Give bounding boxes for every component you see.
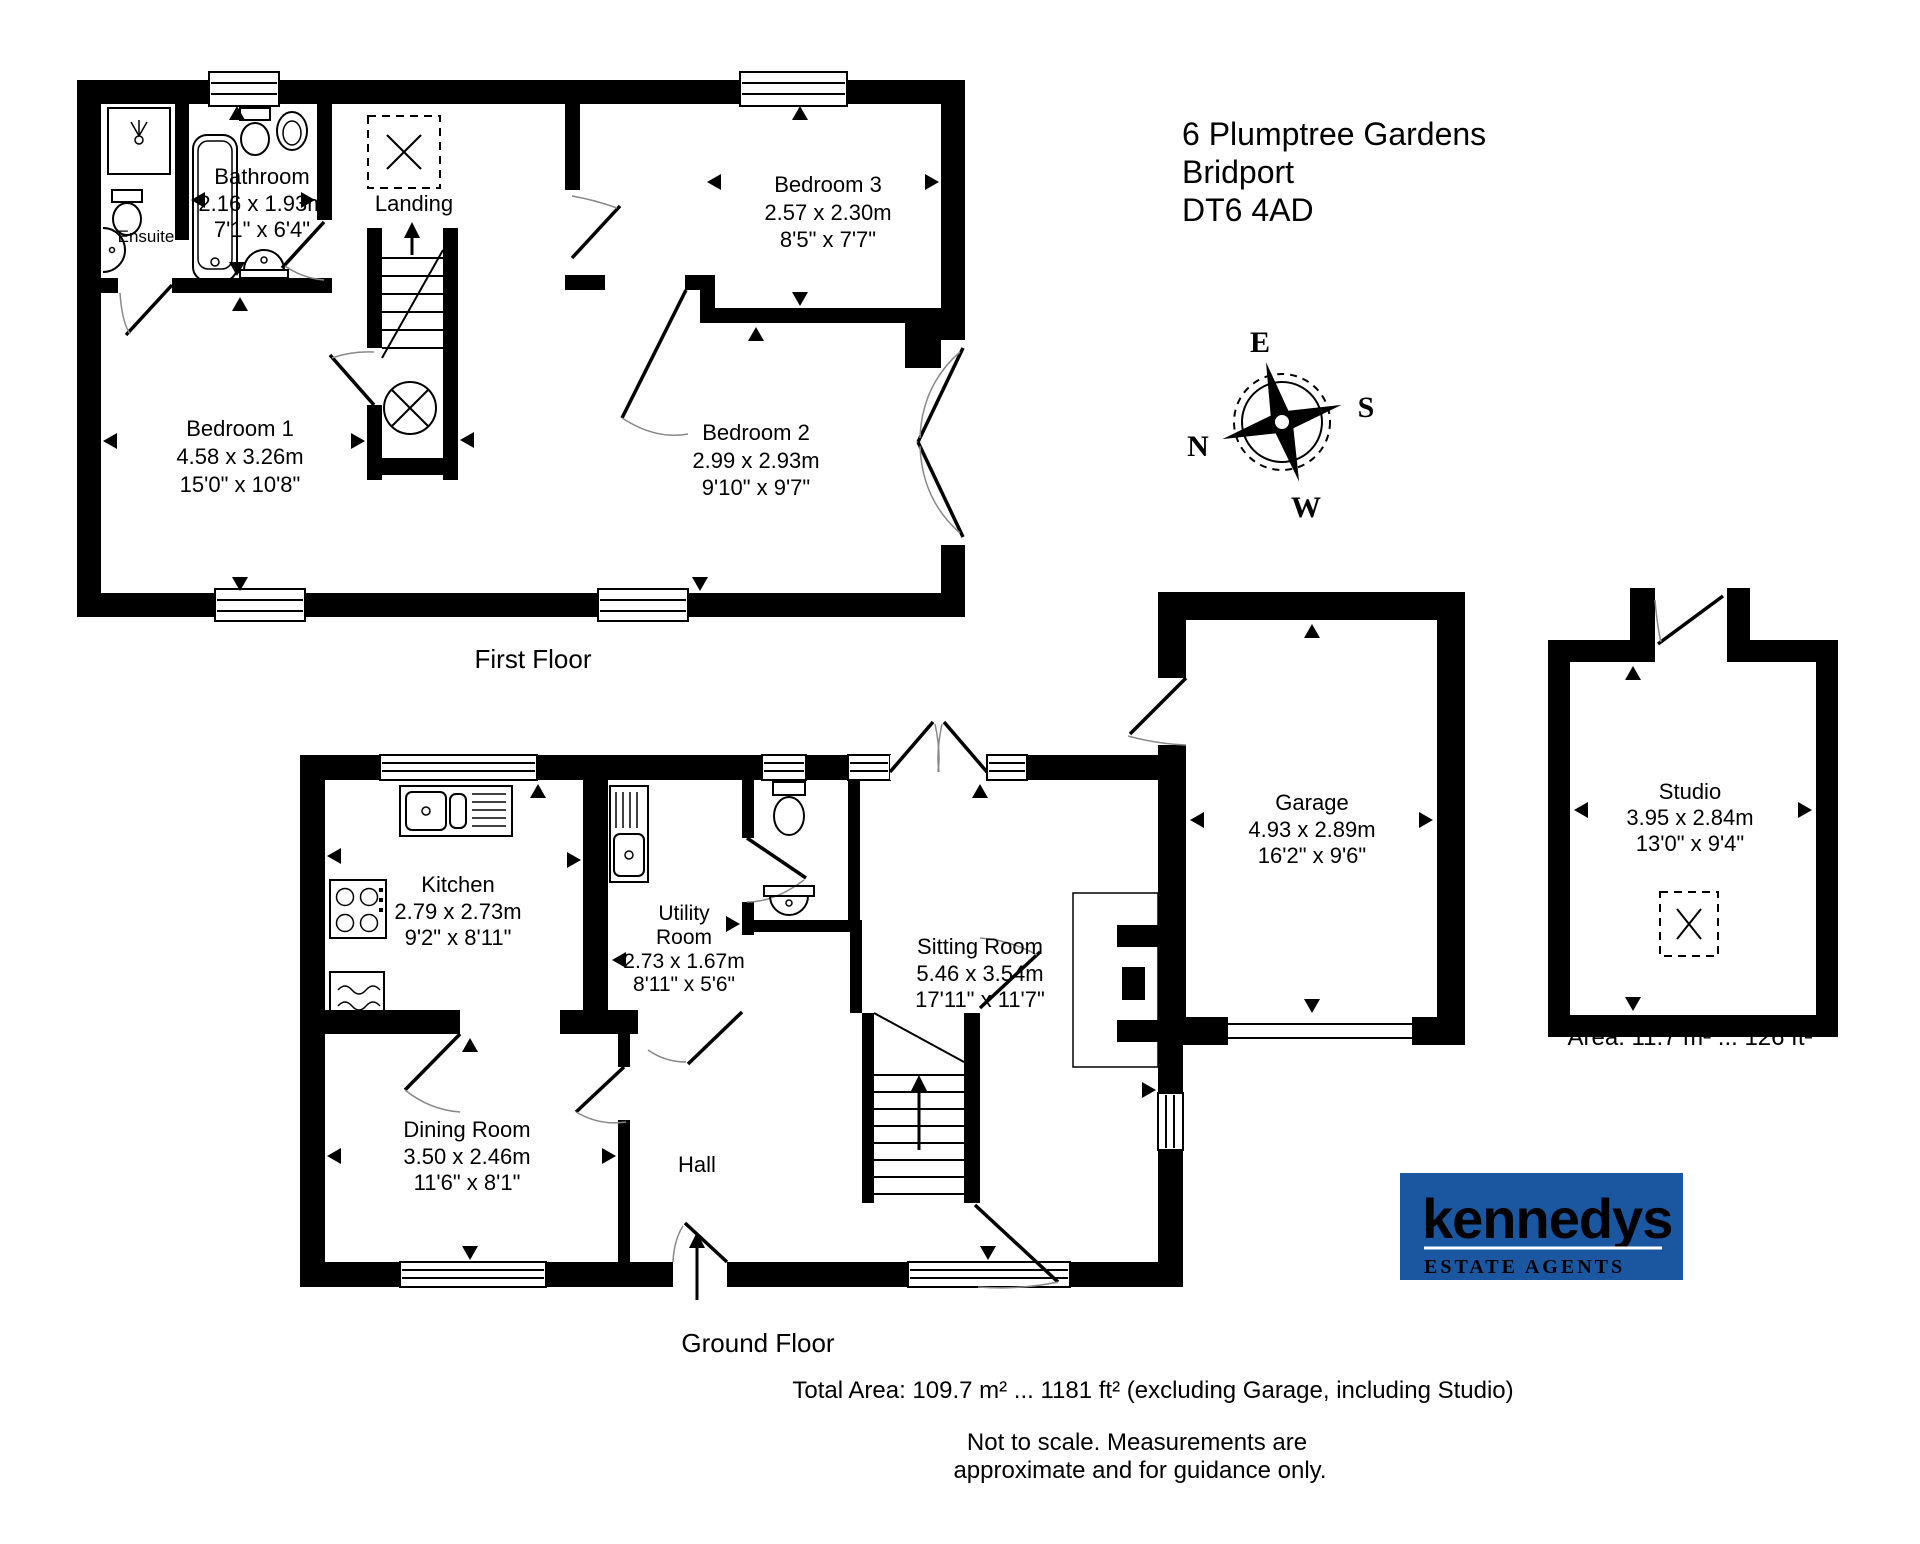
- sitting-side-window: [1158, 1093, 1183, 1150]
- bathroom-toilet-icon: [240, 108, 270, 155]
- front-door: [673, 1223, 727, 1287]
- bedroom2-metric: 2.99 x 2.93m: [692, 448, 819, 473]
- sitting-bottom-window: [908, 1262, 1070, 1287]
- sitting-imperial: 17'11" x 11'7": [915, 987, 1045, 1012]
- bathroom-metric: 2.16 x 1.93m: [198, 191, 325, 216]
- first-floor-room-labels: Ensuite Bathroom 2.16 x 1.93m 7'1" x 6'4…: [118, 164, 892, 500]
- logo-tagline: ESTATE AGENTS: [1424, 1256, 1625, 1278]
- compass-icon: E S N W: [1187, 326, 1374, 524]
- utility-label-line2: Room: [656, 926, 712, 949]
- garage-metric: 4.93 x 2.89m: [1248, 817, 1375, 842]
- first-floor-outer-walls: [77, 80, 965, 617]
- ground-floor-interior-walls: [300, 780, 980, 1262]
- bathroom-label: Bathroom: [214, 164, 309, 189]
- chimney-breast: [905, 323, 941, 368]
- bedroom2-label: Bedroom 2: [702, 420, 810, 445]
- dining-hall-door: [576, 1067, 626, 1123]
- disclaimer-line2: approximate and for guidance only.: [953, 1457, 1326, 1484]
- kennedys-logo: kennedys ESTATE AGENTS: [1400, 1173, 1683, 1280]
- compass-west: W: [1291, 491, 1321, 524]
- utility-imperial: 8'11" x 5'6": [633, 973, 735, 996]
- floorplan-canvas: Ensuite Bathroom 2.16 x 1.93m 7'1" x 6'4…: [0, 0, 1920, 1544]
- dining-metric: 3.50 x 2.46m: [403, 1144, 530, 1169]
- ensuite-label: Ensuite: [118, 227, 175, 246]
- first-floor-doors: [120, 196, 688, 435]
- sitting-metric: 5.46 x 3.54m: [916, 961, 1043, 986]
- bedroom3-label: Bedroom 3: [774, 172, 882, 197]
- compass-east: E: [1250, 326, 1270, 359]
- bedroom1-door: [330, 352, 374, 405]
- kitchen-metric: 2.79 x 2.73m: [394, 899, 521, 924]
- studio-skylight-icon: [1660, 892, 1718, 956]
- fireplace-icon: [1073, 893, 1158, 1067]
- dining-imperial: 11'6" x 8'1": [414, 1170, 521, 1195]
- bathroom-window: [209, 72, 279, 106]
- bedroom1-metric: 4.58 x 3.26m: [176, 444, 303, 469]
- utility-door: [648, 1012, 742, 1064]
- bedroom1-window: [215, 589, 305, 621]
- hall-label: Hall: [678, 1152, 716, 1177]
- bedroom2-side-opening: [918, 340, 965, 545]
- first-floor-plan: Ensuite Bathroom 2.16 x 1.93m 7'1" x 6'4…: [77, 72, 965, 674]
- bedroom2-imperial: 9'10" x 9'7": [702, 475, 810, 500]
- ground-floor-windows: [380, 722, 1183, 1287]
- garage-side-door: [1128, 678, 1186, 745]
- ground-floor-plan: Kitchen 2.79 x 2.73m 9'2" x 8'11" Utilit…: [300, 722, 1183, 1358]
- ground-stairs-icon: [874, 1013, 964, 1194]
- first-floor-caption: First Floor: [475, 644, 592, 674]
- stairs-up-icon: [382, 222, 443, 358]
- address-line2: Bridport: [1182, 154, 1294, 190]
- kitchen-window: [380, 755, 537, 780]
- studio-door: [1655, 596, 1723, 644]
- studio-metric: 3.95 x 2.84m: [1626, 805, 1753, 830]
- address-line3: DT6 4AD: [1182, 192, 1314, 228]
- ground-floor-caption: Ground Floor: [681, 1328, 835, 1358]
- kitchen-imperial: 9'2" x 8'11": [405, 925, 512, 950]
- garage-door: [1228, 1024, 1412, 1038]
- hob-icon: [330, 880, 386, 938]
- bedroom3-imperial: 8'5" x 7'7": [780, 227, 876, 252]
- footer-notes: Total Area: 109.7 m² ... 1181 ft² (exclu…: [792, 1377, 1513, 1484]
- landing-label: Landing: [375, 191, 453, 216]
- studio-area-note: Area: 11.7 m² ... 126 ft²: [1568, 1024, 1813, 1051]
- studio-label: Studio: [1659, 779, 1721, 804]
- utility-label-line1: Utility: [658, 902, 710, 925]
- bedroom3-metric: 2.57 x 2.30m: [764, 200, 891, 225]
- wc-door: [747, 838, 806, 902]
- kitchen-dining-door: [405, 1034, 460, 1112]
- studio-imperial: 13'0" x 9'4": [1636, 831, 1744, 856]
- bedroom1-imperial: 15'0" x 10'8": [180, 472, 301, 497]
- disclaimer-line1: Not to scale. Measurements are: [967, 1429, 1307, 1456]
- dining-label: Dining Room: [403, 1117, 530, 1142]
- bedroom1-label: Bedroom 1: [186, 416, 294, 441]
- wc-toilet-icon: [773, 782, 805, 835]
- utility-metric: 2.73 x 1.67m: [623, 950, 744, 973]
- logo-brand: kennedys: [1422, 1187, 1672, 1250]
- compass-south: S: [1358, 391, 1375, 424]
- studio-plan: Studio 3.95 x 2.84m 13'0" x 9'4" Area: 1…: [1548, 588, 1838, 1051]
- kitchen-sink-icon: [400, 786, 512, 836]
- sitting-window-left: [848, 755, 890, 780]
- bedroom3-window: [740, 72, 847, 106]
- french-doors: [890, 722, 987, 780]
- address-line1: 6 Plumptree Gardens: [1182, 116, 1486, 152]
- garage-plan: Garage 4.93 x 2.89m 16'2" x 9'6": [1128, 592, 1465, 1045]
- bedroom3-door: [572, 196, 620, 258]
- compass-north: N: [1187, 430, 1209, 463]
- sitting-window-right: [987, 755, 1027, 780]
- utility-sink-icon: [610, 786, 648, 882]
- kitchen-label: Kitchen: [421, 872, 494, 897]
- bathroom-imperial: 7'1" x 6'4": [214, 217, 310, 242]
- bedroom2-window: [598, 589, 688, 621]
- landing-skylight-icon: [368, 116, 440, 188]
- garage-label: Garage: [1275, 790, 1348, 815]
- bathroom-pedestal-basin-icon: [240, 250, 288, 278]
- total-area-text: Total Area: 109.7 m² ... 1181 ft² (exclu…: [792, 1377, 1513, 1404]
- property-address: 6 Plumptree Gardens Bridport DT6 4AD: [1182, 116, 1486, 228]
- sitting-label: Sitting Room: [917, 934, 1043, 959]
- ensuite-door: [120, 285, 172, 335]
- garage-imperial: 16'2" x 9'6": [1258, 843, 1366, 868]
- bathroom-basin-icon: [277, 112, 307, 150]
- ceiling-light-icon: [384, 382, 436, 434]
- shower-icon: [108, 108, 170, 174]
- dining-window: [400, 1262, 546, 1287]
- wc-window: [762, 755, 806, 780]
- bedroom2-door: [622, 290, 688, 435]
